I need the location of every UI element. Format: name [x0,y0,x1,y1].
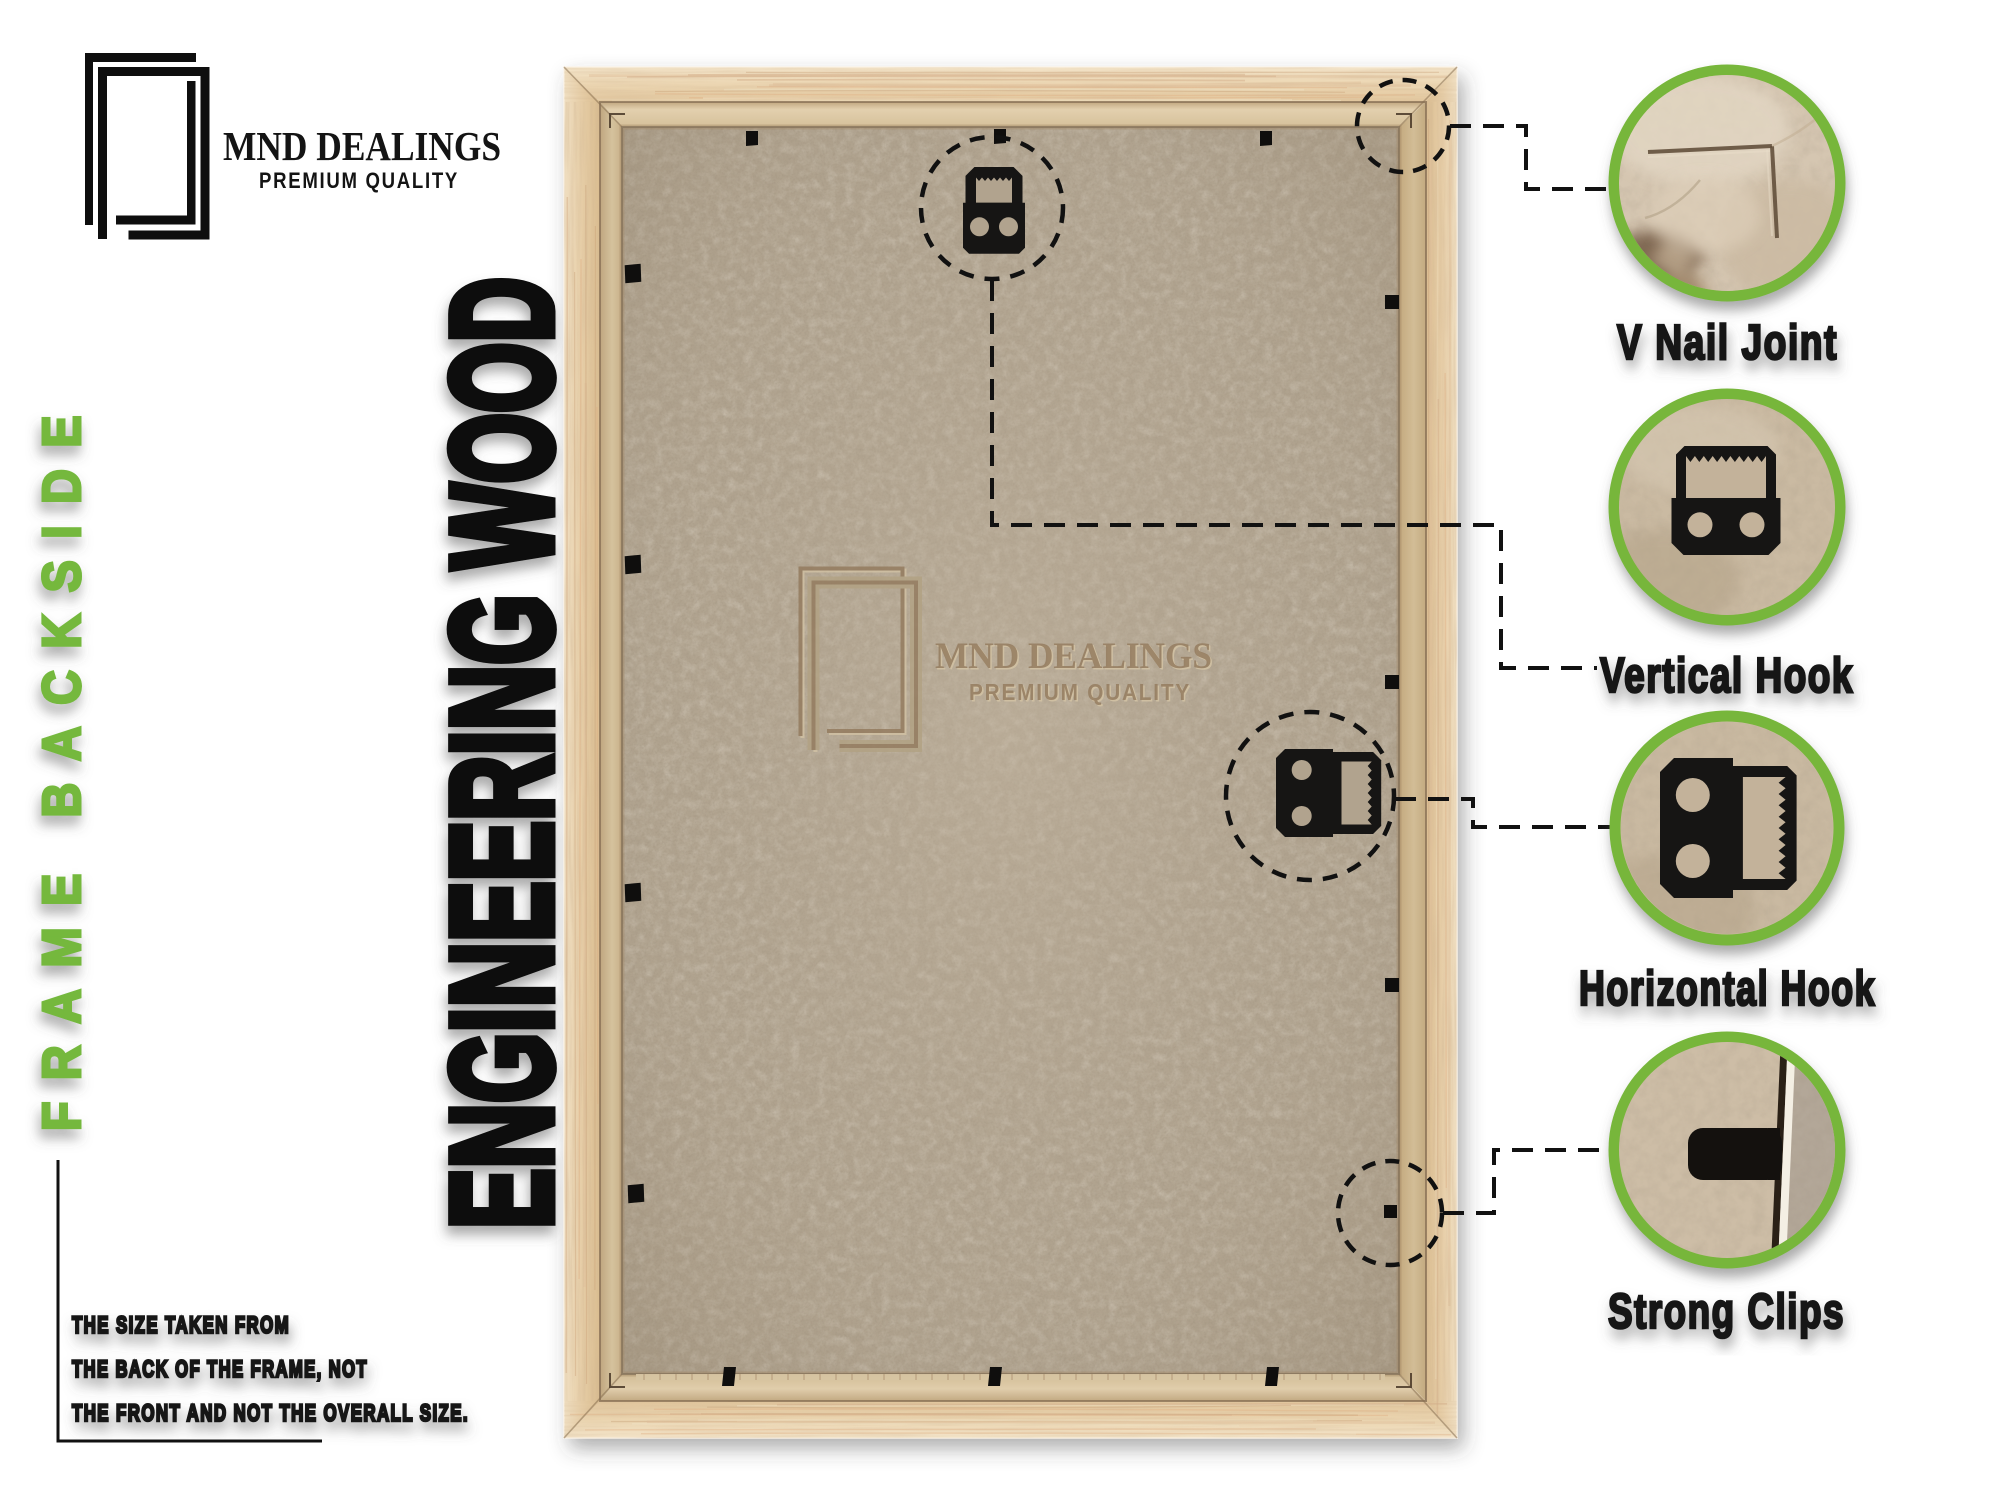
svg-text:THE BACK OF THE FRAME, NOT: THE BACK OF THE FRAME, NOT [72,1356,368,1383]
svg-text:PREMIUM QUALITY: PREMIUM QUALITY [969,679,1191,705]
svg-text:MND DEALINGS: MND DEALINGS [935,636,1212,677]
svg-text:THE SIZE TAKEN FROM: THE SIZE TAKEN FROM [72,1312,290,1339]
svg-text:PREMIUM QUALITY: PREMIUM QUALITY [259,168,459,193]
svg-text:Strong Clips: Strong Clips [1608,1285,1845,1339]
svg-text:ENGINEERING WOOD: ENGINEERING WOOD [423,277,582,1229]
svg-text:Vertical Hook: Vertical Hook [1600,649,1854,703]
svg-text:MND DEALINGS: MND DEALINGS [223,123,501,169]
svg-text:THE FRONT AND NOT THE OVERALL: THE FRONT AND NOT THE OVERALL SIZE. [72,1400,469,1427]
svg-text:Horizontal Hook: Horizontal Hook [1579,962,1876,1016]
svg-text:V Nail Joint: V Nail Joint [1617,316,1838,370]
svg-text:FRAME BACKSIDE: FRAME BACKSIDE [32,394,92,1131]
